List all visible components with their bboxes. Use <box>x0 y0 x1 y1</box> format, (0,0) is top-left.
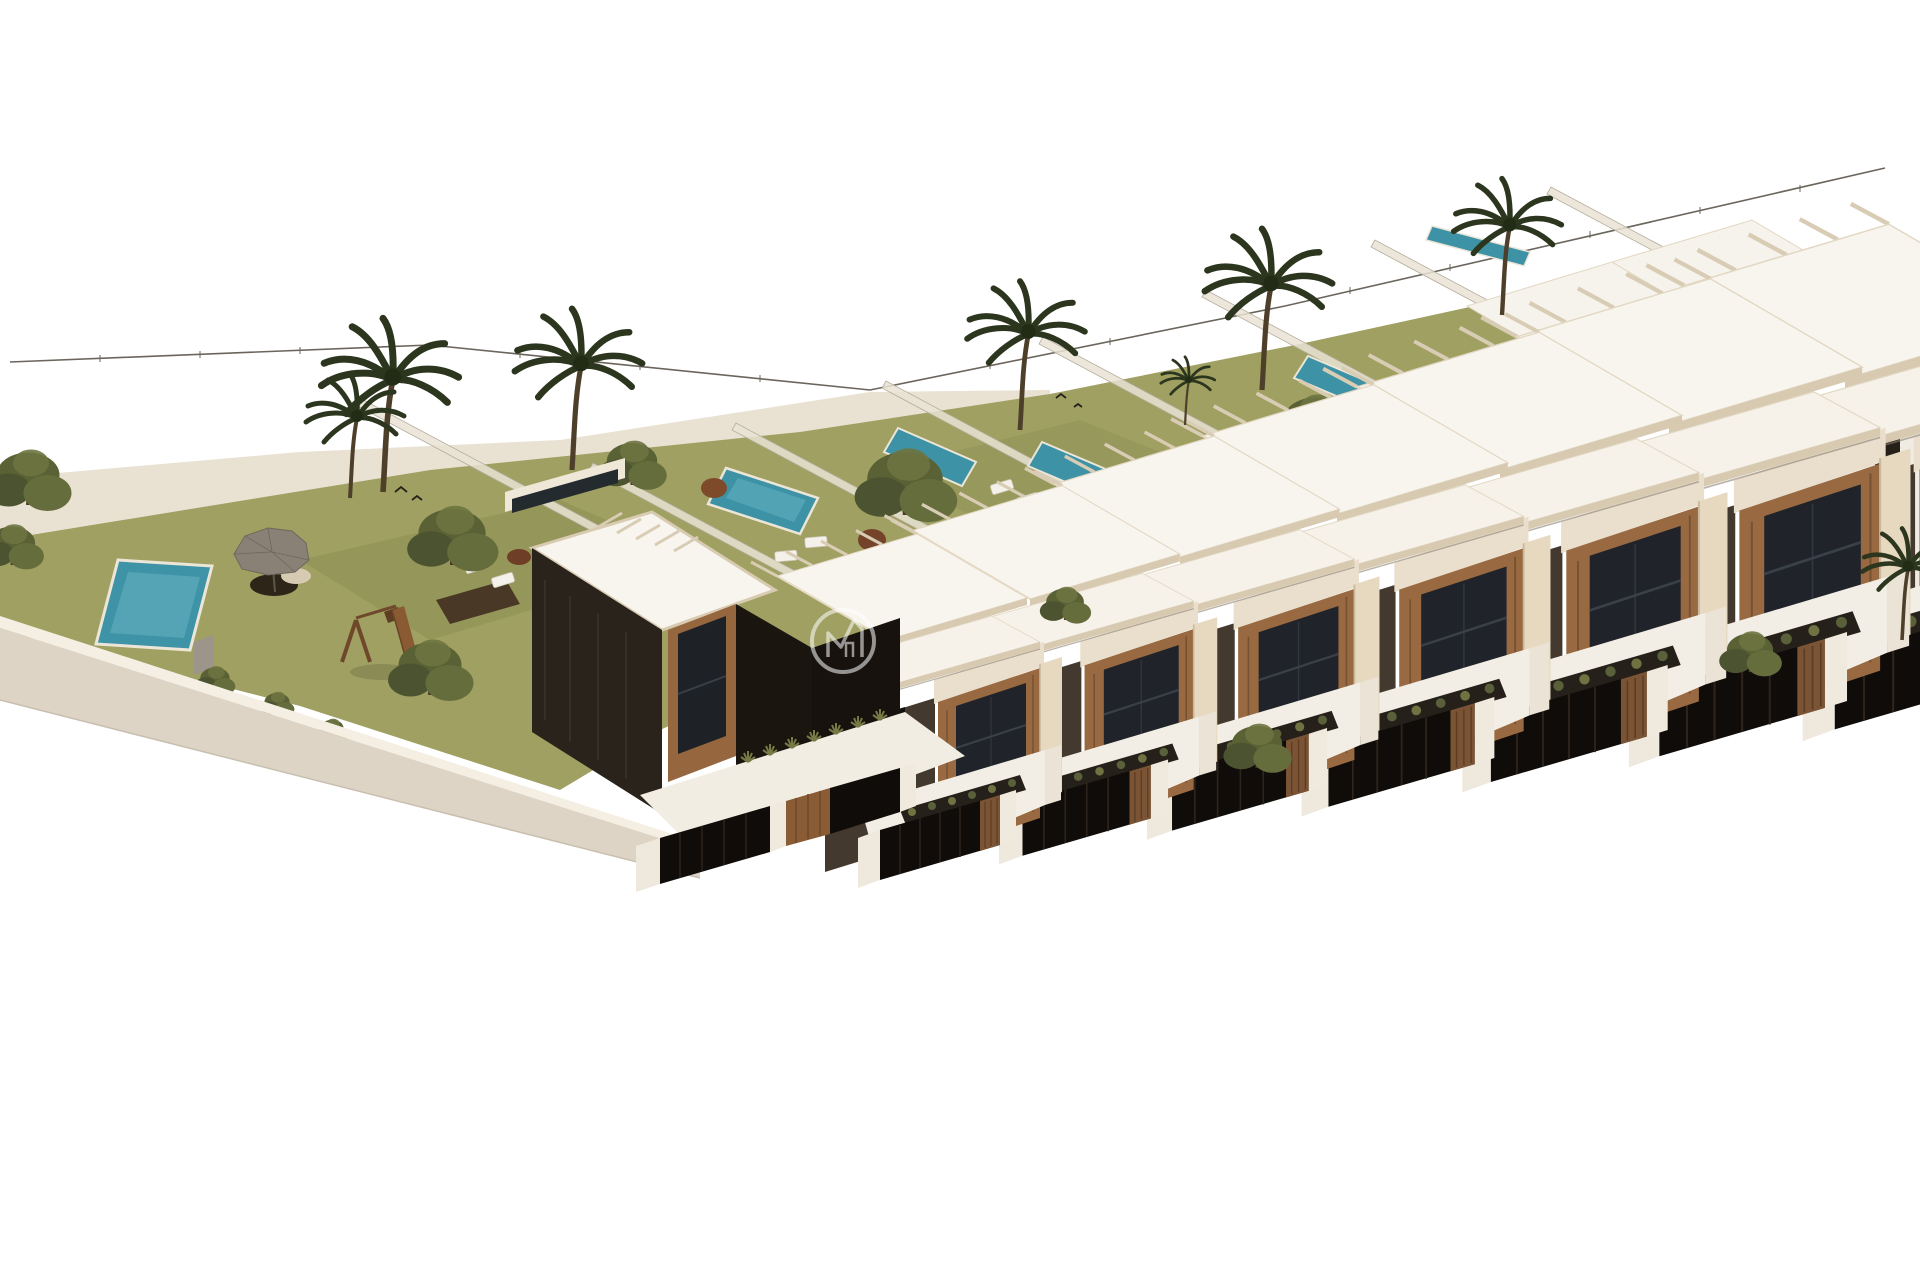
aerial-render: Aerial 3D render of new-build townhouse … <box>0 0 1920 1280</box>
rust-shrub <box>507 549 531 565</box>
rust-shrub <box>701 478 727 498</box>
communal-pool <box>96 560 212 650</box>
render-canvas: Aerial 3D render of new-build townhouse … <box>0 0 1920 1280</box>
